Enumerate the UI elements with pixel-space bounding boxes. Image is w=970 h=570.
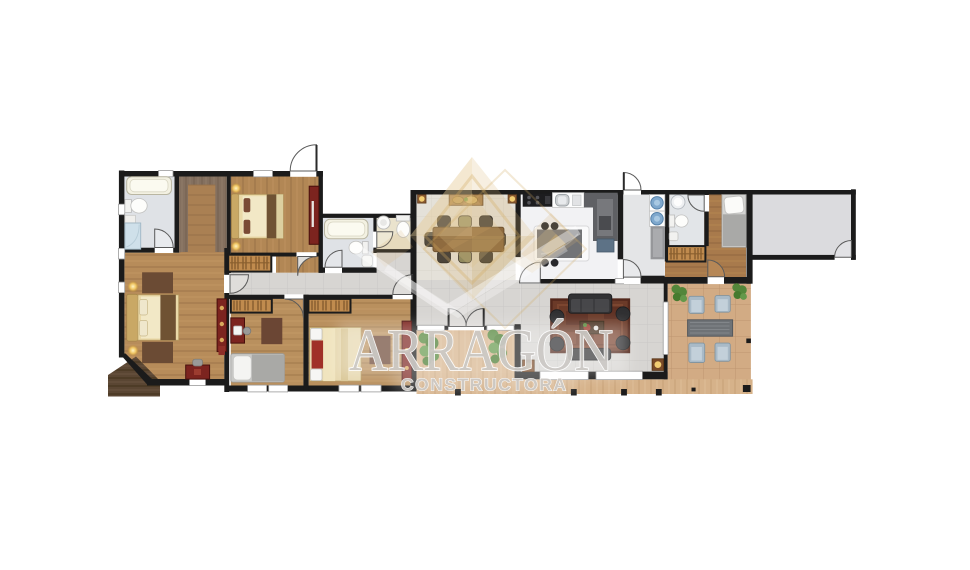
- svg-text:CONSTRUCTORA: CONSTRUCTORA: [401, 374, 566, 394]
- svg-text:ARRAGÓN: ARRAGÓN: [349, 317, 613, 383]
